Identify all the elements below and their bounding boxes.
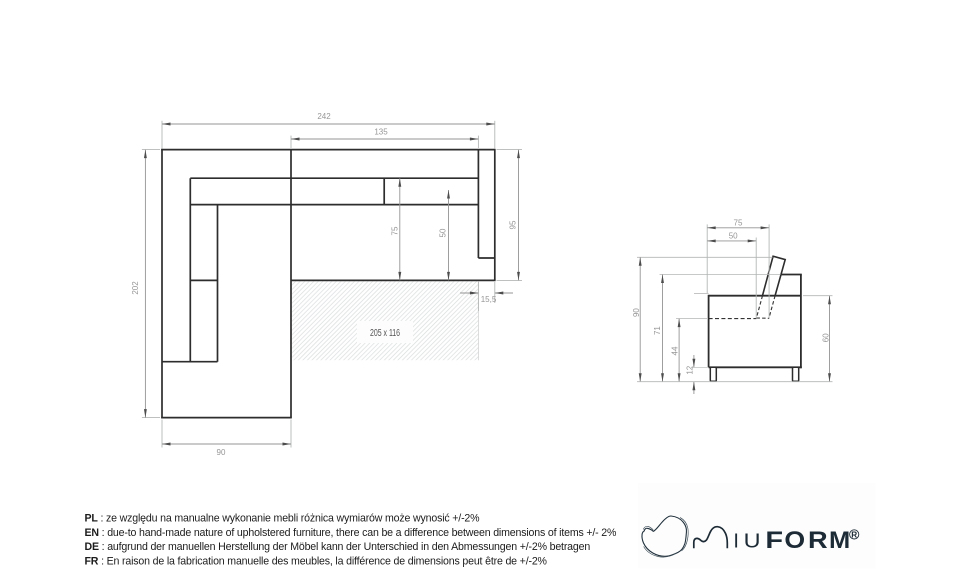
svg-text:202: 202 [131,281,140,295]
svg-text:75: 75 [734,218,743,227]
svg-text:71: 71 [653,326,662,335]
svg-text:DE : aufgrund der manuellen He: DE : aufgrund der manuellen Herstellung … [85,541,591,553]
svg-text:EN : due-to hand-made nature o: EN : due-to hand-made nature of upholste… [85,527,618,539]
svg-text:242: 242 [317,112,331,121]
svg-text:F: F [765,526,783,553]
svg-text:90: 90 [217,448,226,457]
svg-text:135: 135 [374,128,388,137]
svg-text:FR : En raison de la fabricati: FR : En raison de la fabrication manuell… [85,556,548,568]
svg-text:U: U [744,529,761,552]
svg-text:95: 95 [509,220,518,229]
svg-text:15,5: 15,5 [481,295,497,304]
svg-text:50: 50 [729,232,738,241]
svg-text:O: O [784,527,805,554]
svg-text:M: M [829,526,850,553]
svg-text:205 x 116: 205 x 116 [370,327,400,338]
svg-text:90: 90 [632,308,641,317]
svg-text:60: 60 [821,333,830,342]
svg-text:R: R [808,527,828,554]
svg-text:I: I [733,531,739,553]
svg-text:PL : ze względu na manualne wy: PL : ze względu na manualne wykonanie me… [85,513,481,525]
svg-text:12: 12 [685,365,694,374]
svg-text:50: 50 [438,228,447,237]
svg-text:R: R [851,530,857,539]
svg-text:44: 44 [671,346,680,355]
svg-text:75: 75 [390,226,399,235]
